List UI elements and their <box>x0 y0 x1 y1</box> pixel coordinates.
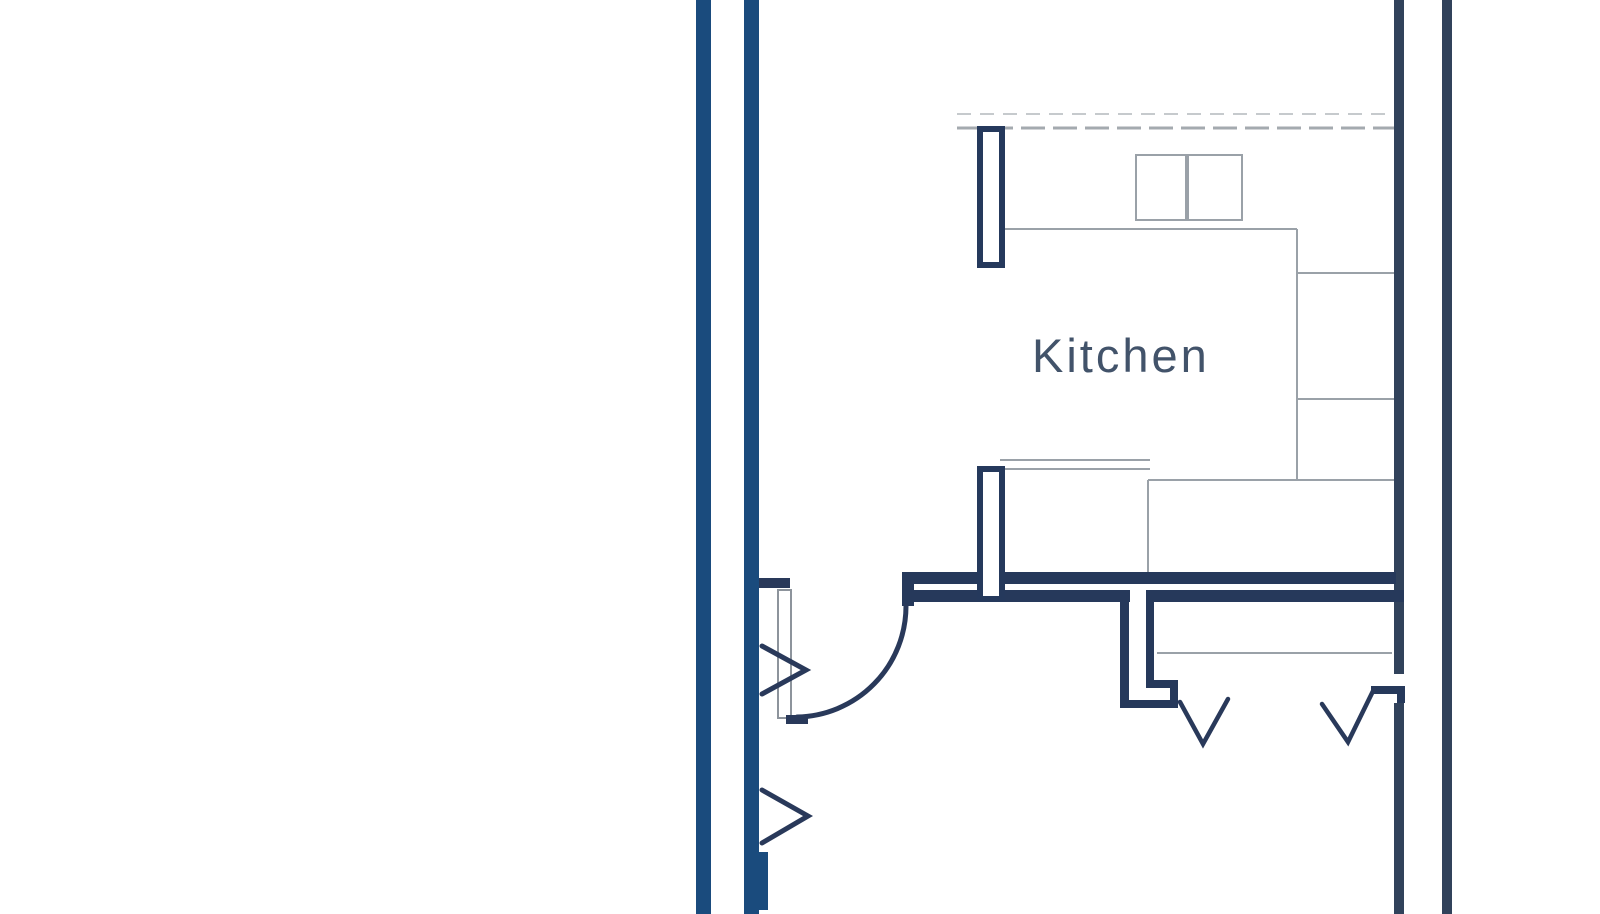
wall-pillar-top <box>980 129 1002 265</box>
left-wall-bottom-pier <box>744 852 768 910</box>
floor-plan-drawing: Kitchen <box>0 0 1600 914</box>
right-wall-inner-line <box>1394 0 1404 914</box>
entry-door-swing-arc <box>797 606 906 717</box>
room-label-kitchen: Kitchen <box>1032 329 1210 382</box>
partition-wall-west-line <box>1120 602 1129 708</box>
left-wall-outer-line <box>696 0 711 914</box>
right-wall-door-notch <box>1392 674 1406 686</box>
right-wall-outer-line <box>1442 0 1452 914</box>
right-wall-jamb-inner-notch <box>1371 694 1397 703</box>
partition-bottom-cap <box>1120 700 1178 708</box>
kitchen-south-wall-end-cap <box>902 572 914 606</box>
lower-north-wall-west <box>913 590 1130 602</box>
lower-room-door-chevron-left <box>1180 699 1228 744</box>
floor-plan-canvas: Kitchen <box>0 0 1600 914</box>
lower-north-wall-east <box>1146 590 1404 602</box>
partition-wall-east-line <box>1146 602 1154 684</box>
sink-basin-right <box>1188 155 1242 220</box>
wall-pillar-bottom <box>980 469 1002 599</box>
lower-room-door-chevron-right <box>1322 689 1374 742</box>
kitchen-south-wall <box>902 572 1396 584</box>
left-wall-inner-line <box>744 0 759 914</box>
entry-door-jamb-stub-top <box>759 578 790 588</box>
partition-jamb-edge <box>1170 680 1178 708</box>
left-wall-door-chevron-lower <box>762 790 808 843</box>
sink-basin-left <box>1136 155 1186 220</box>
